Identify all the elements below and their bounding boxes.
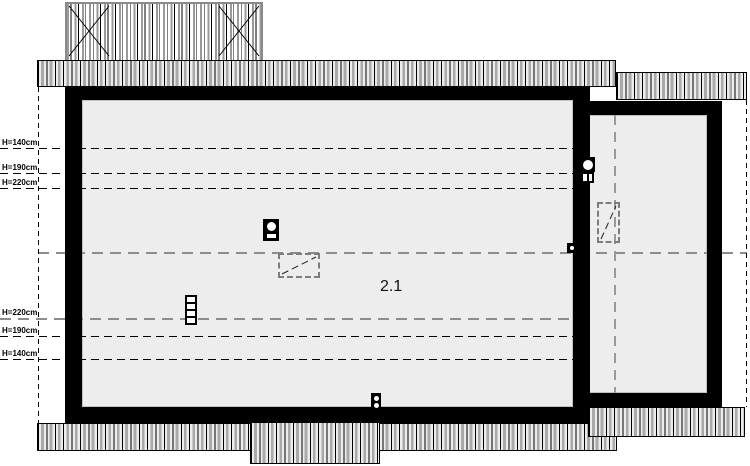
skylight-icon-side-room: [597, 202, 620, 243]
eave-band-top-right: [616, 72, 747, 100]
height-line-140-bottom: [0, 359, 573, 360]
side-room-ridge-line: [614, 115, 616, 393]
height-label: H=190cm: [2, 163, 37, 172]
wall-main-top: [65, 87, 590, 100]
height-label: H=220cm: [2, 308, 37, 317]
height-label: H=220cm: [2, 178, 37, 187]
wall-side-bottom: [589, 393, 722, 408]
floor-side-room: [589, 115, 707, 393]
chimney-icon-small: [371, 393, 381, 410]
height-line-140-top: [0, 148, 573, 149]
wall-side-top: [589, 101, 722, 115]
chimney-icon: [263, 219, 279, 241]
room-number-label: 2.1: [380, 278, 402, 296]
height-line-190-top: [0, 173, 573, 174]
skylight-icon: [278, 253, 320, 278]
height-line-220-top: [0, 188, 573, 189]
wall-main-left: [65, 87, 82, 423]
roof-edge-dashed-right: [746, 100, 747, 407]
dormer-corner-braces: [67, 4, 261, 58]
flue-box-icon: [581, 172, 594, 183]
ridge-line: [38, 252, 747, 254]
height-label: H=190cm: [2, 326, 37, 335]
dormer-deck: [65, 2, 263, 60]
height-line-220-bottom: [0, 318, 573, 320]
height-label: H=140cm: [2, 349, 37, 358]
chimney-flue-icon: [185, 295, 197, 325]
wall-side-right: [707, 101, 722, 408]
wall-main-bottom: [65, 407, 590, 423]
eave-band-bottom-notch: [250, 423, 380, 464]
wall-divider: [573, 87, 590, 423]
eave-band-top: [37, 60, 616, 87]
roof-edge-dashed-left: [38, 87, 39, 423]
floor-plan-canvas: H=140cm H=190cm H=220cm H=220cm H=190cm …: [0, 0, 750, 466]
height-line-190-bottom: [0, 336, 573, 337]
height-label: H=140cm: [2, 138, 37, 147]
eave-band-bottom-right: [588, 407, 745, 437]
chimney-icon-side-room: [580, 157, 595, 172]
vent-icon: [567, 243, 577, 253]
